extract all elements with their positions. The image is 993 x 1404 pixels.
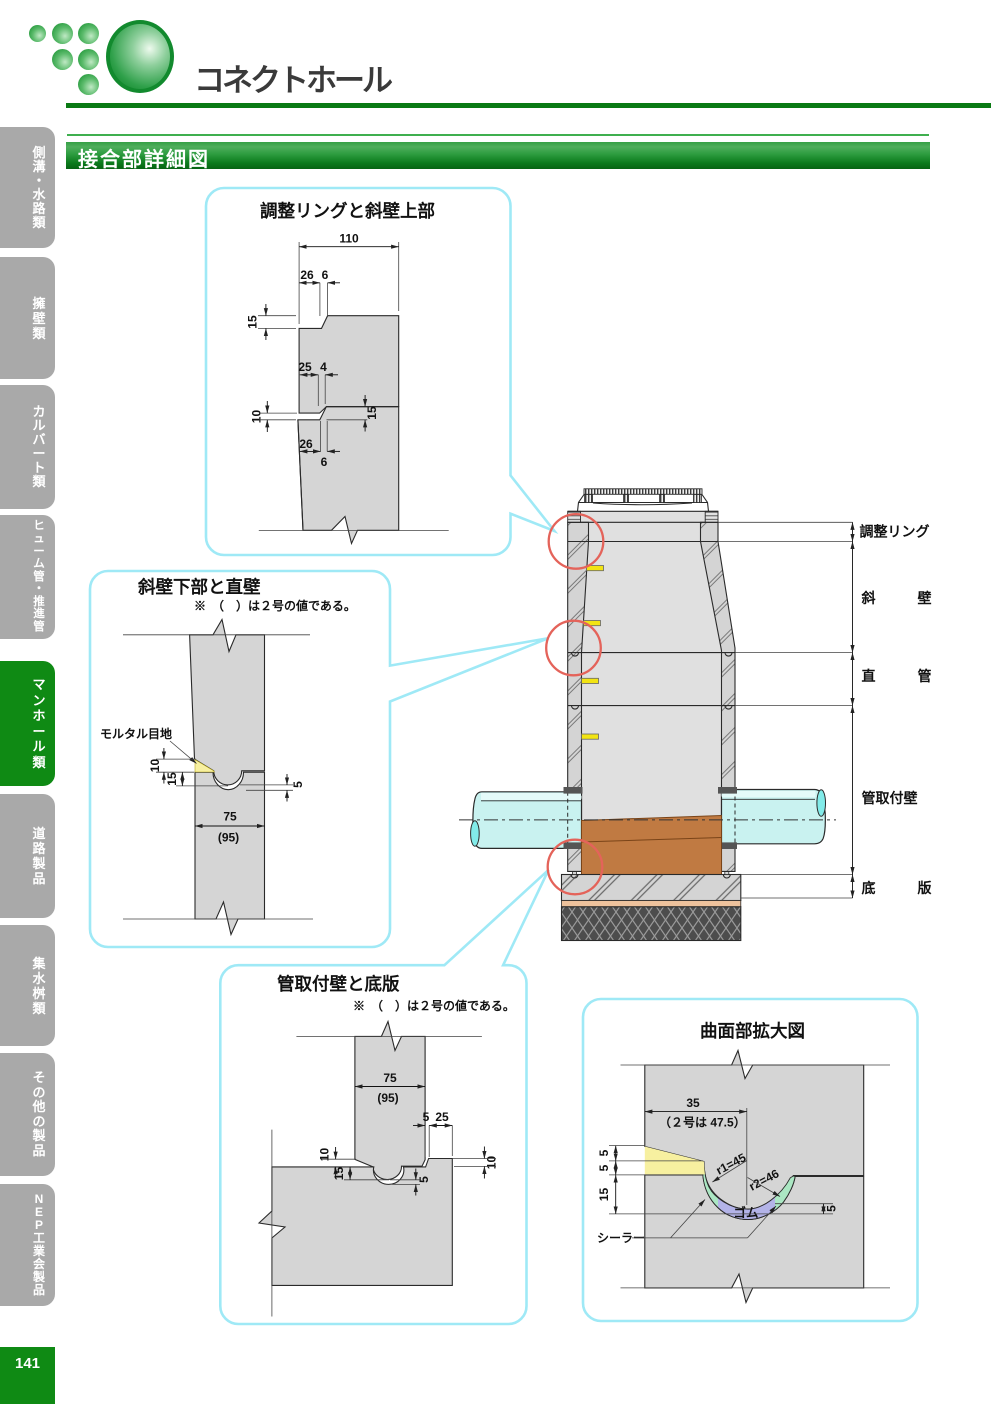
svg-text:モルタル目地: モルタル目地 (100, 726, 172, 741)
svg-text:10: 10 (250, 410, 264, 424)
svg-text:(95): (95) (377, 1091, 398, 1105)
svg-text:版: 版 (918, 880, 932, 896)
svg-text:斜: 斜 (861, 590, 876, 606)
svg-text:15: 15 (165, 772, 179, 786)
svg-text:※ （ ）は２号の値である。: ※ （ ）は２号の値である。 (194, 598, 356, 613)
svg-text:斜壁下部と直壁: 斜壁下部と直壁 (137, 577, 261, 597)
svg-text:管取付壁: 管取付壁 (862, 790, 918, 806)
svg-text:管: 管 (918, 668, 932, 684)
svg-text:5: 5 (291, 781, 305, 788)
svg-text:26: 26 (299, 437, 313, 451)
svg-text:15: 15 (246, 315, 260, 329)
svg-text:10: 10 (148, 759, 162, 773)
svg-text:5: 5 (417, 1176, 431, 1183)
svg-text:5: 5 (597, 1164, 611, 1171)
svg-text:15: 15 (597, 1188, 611, 1202)
svg-text:直: 直 (862, 668, 876, 684)
svg-text:調整リング: 調整リング (860, 524, 930, 540)
svg-text:75: 75 (223, 810, 237, 824)
svg-text:5: 5 (597, 1149, 611, 1156)
svg-text:6: 6 (321, 455, 328, 469)
svg-text:10: 10 (485, 1156, 499, 1170)
svg-text:5: 5 (825, 1205, 839, 1212)
svg-text:6: 6 (322, 268, 329, 282)
svg-text:75: 75 (383, 1071, 397, 1085)
svg-text:調整リングと斜壁上部: 調整リングと斜壁上部 (260, 201, 435, 221)
svg-text:（２号は 47.5）: （２号は 47.5） (659, 1115, 746, 1130)
svg-text:25: 25 (435, 1110, 449, 1124)
svg-text:5: 5 (423, 1110, 430, 1124)
svg-text:※ （ ）は２号の値である。: ※ （ ）は２号の値である。 (353, 998, 515, 1013)
svg-text:15: 15 (332, 1167, 346, 1181)
svg-text:ゴム: ゴム (733, 1205, 759, 1220)
svg-text:35: 35 (686, 1096, 700, 1110)
svg-text:管取付壁と底版: 管取付壁と底版 (277, 974, 400, 994)
svg-text:110: 110 (339, 232, 359, 246)
svg-text:25: 25 (298, 360, 312, 374)
svg-text:壁: 壁 (918, 590, 932, 606)
svg-text:26: 26 (300, 268, 314, 282)
svg-text:底: 底 (862, 880, 876, 896)
svg-text:15: 15 (365, 406, 379, 420)
svg-text:曲面部拡大図: 曲面部拡大図 (700, 1021, 805, 1041)
svg-text:(95): (95) (218, 831, 239, 845)
svg-text:4: 4 (320, 360, 327, 374)
